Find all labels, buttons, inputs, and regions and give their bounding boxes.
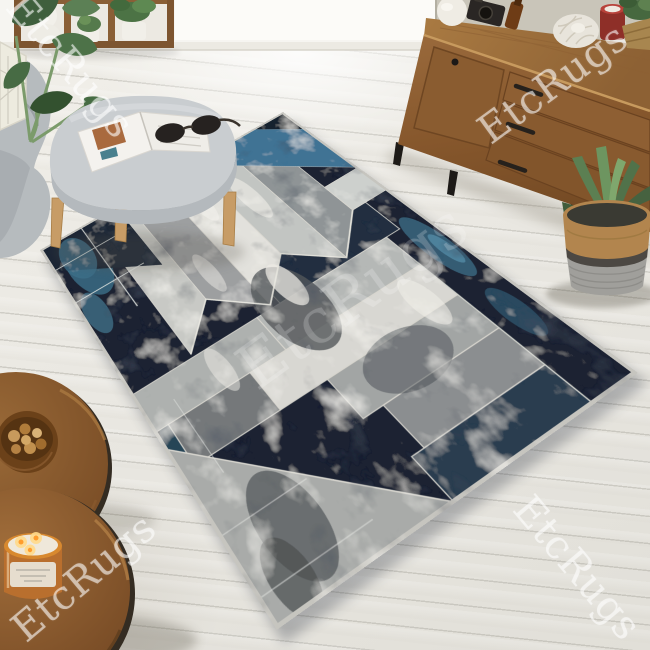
coffee-tables [0, 372, 197, 650]
living-room-scene: EtcRugs EtcRugs EtcRugs EtcRugs EtcRugs [0, 0, 650, 650]
footstool-shadow [55, 232, 245, 272]
foreground-layer [0, 0, 650, 650]
footstool [50, 96, 245, 272]
candle-jar [4, 532, 62, 599]
candle-label [10, 562, 56, 587]
